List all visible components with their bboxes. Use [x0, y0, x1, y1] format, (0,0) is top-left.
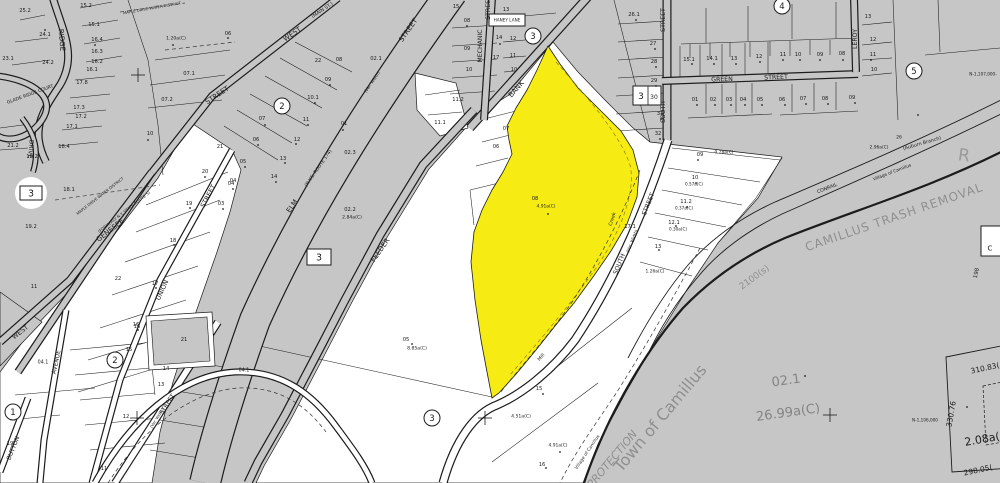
- street-label-leroy: LEROY: [852, 29, 859, 49]
- parcel-label: 07: [800, 96, 807, 102]
- parcel-label: 2.84a(C): [342, 215, 362, 221]
- parcel-label: 01: [692, 97, 699, 103]
- parcel-label: 1.20a(C): [166, 36, 186, 42]
- parcel-label: 17.2: [75, 114, 87, 120]
- parcel-point-dot: [264, 124, 266, 126]
- parcel-label: 12.1: [668, 220, 680, 226]
- parcel-map[interactable]: RIDGEGLADE RIDGE COURTDRIVEMAPLE DRIVE W…: [0, 0, 1000, 483]
- parcel-label: 08: [336, 57, 343, 63]
- parcel-label: 07: [503, 126, 510, 132]
- parcel-label: 15.1: [88, 22, 100, 28]
- parcel-point-dot: [917, 114, 919, 116]
- parcel-label: 04: [740, 97, 747, 103]
- parcel-label: 11: [780, 52, 787, 58]
- parcel-label: 23.1: [2, 56, 14, 62]
- parcel-point-dot: [654, 48, 656, 50]
- parcel-label: 28: [651, 59, 658, 65]
- parcel-label: 14: [271, 174, 278, 180]
- parcel-point-dot: [730, 104, 732, 106]
- parcel-label: 15: [126, 347, 133, 353]
- parcel-label: 03: [218, 201, 225, 207]
- parcel-point-dot: [805, 103, 807, 105]
- parcel-label: 19: [186, 201, 193, 207]
- parcel-label: 21: [217, 144, 224, 150]
- parcel-label: 4.91a(C): [549, 443, 568, 449]
- parcel-point-dot: [759, 61, 761, 63]
- parcel-label: 17: [152, 281, 159, 287]
- parcel-point-dot: [232, 188, 234, 190]
- parcel-label: 13: [865, 14, 872, 20]
- highlighted-parcel-area: 4.91a(C): [537, 204, 556, 210]
- parcel-label: 13: [503, 7, 510, 13]
- parcel-label: 17: [493, 55, 500, 61]
- parcel-label: 09: [464, 46, 471, 52]
- circled-section-number: 5: [911, 67, 916, 77]
- parcel-point-dot: [547, 213, 549, 215]
- parcel-label: 11.2: [680, 199, 692, 205]
- parcel-point-dot: [411, 343, 413, 345]
- parcel-label: 13: [731, 56, 738, 62]
- parcel-point-dot: [784, 104, 786, 106]
- circled-section-number: 1: [10, 408, 15, 418]
- parcel-label: 17.1: [66, 124, 78, 130]
- parcel-label: 09: [817, 52, 824, 58]
- parcel-label: 11: [31, 284, 38, 290]
- parcel-label: 12: [123, 414, 130, 420]
- parcel-label: 06: [253, 137, 260, 143]
- parcel-label: 15: [536, 386, 543, 392]
- parcel-point-dot: [173, 244, 175, 246]
- boxed-section-number: 3: [316, 252, 322, 263]
- parcel-point-dot: [870, 59, 872, 61]
- street-label-south-street: STREET: [660, 8, 667, 32]
- parcel-label: 10: [795, 52, 802, 58]
- parcel-label: 07.2: [161, 97, 173, 103]
- parcel-point-dot: [696, 104, 698, 106]
- parcel-label: 12: [294, 137, 301, 143]
- parcel-point-dot: [854, 102, 856, 104]
- parcel-label: 18.4: [58, 144, 70, 150]
- circled-section-number: 4: [779, 2, 784, 12]
- parcel-label: 11.1: [434, 120, 446, 126]
- parcel-point-dot: [329, 84, 331, 86]
- parcel-label: 16.4: [91, 37, 103, 43]
- parcel-label: 26.1: [628, 12, 640, 18]
- parcel-point-dot: [342, 129, 344, 131]
- parcel-label: 01: [341, 121, 348, 127]
- parcel-label: 17.1: [624, 224, 636, 230]
- parcel-point-dot: [659, 138, 661, 140]
- parcel-label: 17.8: [76, 80, 88, 86]
- parcel-point-dot: [655, 66, 657, 68]
- parcel-label: 02.2: [344, 207, 356, 213]
- parcel-point-dot: [799, 59, 801, 61]
- parcel-point-dot: [635, 19, 637, 21]
- parcel-label: 0.37a(C): [675, 205, 693, 210]
- parcel-label: 10.1: [307, 95, 319, 101]
- parcel-label: 09: [325, 77, 332, 83]
- parcel-point-dot: [713, 63, 715, 65]
- parcel-point-dot: [655, 85, 657, 87]
- parcel-label: 27: [650, 41, 657, 47]
- parcel-label: 06: [779, 97, 786, 103]
- parcel-label: 02: [710, 97, 717, 103]
- parcel-point-dot: [827, 103, 829, 105]
- parcel-label: 16.3: [91, 49, 103, 55]
- grid-coordinate-label: N-1,107,000-: [969, 71, 997, 76]
- parcel-point-dot: [542, 393, 544, 395]
- parcel-label: 08: [822, 96, 829, 102]
- parcel-point-dot: [804, 375, 806, 377]
- parcel-label: 04.1: [38, 360, 49, 366]
- parcel-label: 4.51a(C): [511, 414, 531, 420]
- circled-section-number: 3: [429, 414, 434, 424]
- parcel-point-dot: [275, 181, 277, 183]
- parcel-point-dot: [172, 44, 174, 46]
- parcel-label: 16: [134, 324, 141, 330]
- parcel-point-dot: [735, 63, 737, 65]
- highlighted-parcel-number: 08: [532, 196, 539, 202]
- parcel-label: 0.30a(C): [669, 226, 687, 231]
- parcel-label: 10: [871, 67, 878, 73]
- parcel-label: 04: [228, 181, 235, 187]
- parcel-point-dot: [94, 44, 96, 46]
- parcel-point-dot: [545, 467, 547, 469]
- parcel-point-dot: [761, 104, 763, 106]
- street-label-green: GREEN: [711, 76, 733, 84]
- parcel-point-dot: [466, 25, 468, 27]
- parcel-point-dot: [691, 63, 693, 65]
- grid-coordinate-label: N-1,106,000: [912, 417, 938, 422]
- parcel-point-dot: [559, 451, 561, 453]
- parcel-label: 14.1: [706, 56, 718, 62]
- parcel-label: 19.2: [26, 154, 38, 160]
- parcel-point-dot: [204, 176, 206, 178]
- parcel-label: 21.2: [7, 143, 19, 149]
- parcel-label: 11: [101, 466, 108, 472]
- parcel-label: 24.1: [39, 32, 51, 38]
- boxed-section-number: 3: [638, 92, 644, 102]
- partial-letter: C: [988, 244, 993, 252]
- parcel-label: 29: [651, 78, 658, 84]
- parcel-label: 12: [510, 36, 517, 42]
- parcel-label: 10: [466, 67, 473, 73]
- parcel-label: 09: [697, 152, 704, 158]
- parcel-label: 14: [163, 366, 170, 372]
- parcel-point-dot: [295, 143, 297, 145]
- parcel-label: 24.2: [42, 60, 54, 66]
- parcel-point-dot: [244, 166, 246, 168]
- parcel-point-dot: [222, 208, 224, 210]
- parcel-label: 02.1: [370, 56, 382, 62]
- parcel-label: 19.2: [25, 224, 37, 230]
- parcel-number: 30: [650, 94, 658, 101]
- parcel-label: 18: [170, 238, 177, 244]
- parcel-label: 22: [315, 58, 322, 64]
- parcel-label: 04.1: [239, 368, 250, 374]
- parcel-map-canvas[interactable]: RIDGEGLADE RIDGE COURTDRIVEMAPLE DRIVE W…: [0, 0, 1000, 483]
- parcel-label: 10: [511, 67, 518, 73]
- parcel-label: 0.57a(C): [685, 181, 703, 186]
- parcel-label: 15.1: [683, 57, 695, 63]
- parcel-label: 31: [657, 111, 664, 117]
- parcel-label: 09: [849, 95, 856, 101]
- parcel-label: 20: [202, 169, 209, 175]
- parcel-label: 12: [756, 54, 763, 60]
- parcel-label: 21: [181, 337, 188, 343]
- parcel-label: 26: [896, 135, 902, 141]
- parcel-label: 13: [158, 382, 165, 388]
- parcel-point-dot: [284, 162, 286, 164]
- parcel-label: 05: [240, 159, 247, 165]
- parcel-point-dot: [155, 287, 157, 289]
- parcel-label: 11.2: [452, 97, 464, 103]
- parcel-point-dot: [257, 144, 259, 146]
- parcel-label: 1.26a(C): [646, 269, 665, 275]
- circled-section-number: 2: [279, 102, 284, 112]
- parcel-label: 32: [655, 131, 662, 137]
- parcel-label: 15.2: [80, 3, 92, 9]
- parcel-label: 16.2: [91, 59, 103, 65]
- parcel-label: 18.1: [63, 187, 75, 193]
- parcel-label: 08: [839, 51, 846, 57]
- parcel-point-dot: [819, 59, 821, 61]
- parcel-point-dot: [966, 406, 968, 408]
- parcel-label: 25.2: [19, 8, 31, 14]
- parcel-label: 07.1: [183, 71, 195, 77]
- parcel-label: 0.28a(C): [715, 150, 734, 156]
- circled-section-number: 3: [530, 32, 535, 42]
- boxed-section-number: 3: [28, 188, 34, 199]
- parcel-point-dot: [744, 104, 746, 106]
- parcel-label: 06: [225, 31, 232, 37]
- parcel-label: 19: [7, 441, 14, 447]
- parcel-label: 2.96a(C): [870, 145, 889, 151]
- parcel-label: 15: [453, 4, 460, 10]
- parcel-point-dot: [189, 207, 191, 209]
- parcel-label: 22: [115, 276, 122, 282]
- street-label-mechanic-street: STREET: [485, 0, 492, 20]
- parcel-label: 06: [493, 144, 500, 150]
- parcel-point-dot: [714, 104, 716, 106]
- parcel-label: 16.1: [86, 67, 98, 73]
- street-label-green-street: STREET: [764, 74, 788, 82]
- street-label-mechanic: MECHANIC: [477, 29, 484, 62]
- street-label-haney-lane: HANEY LANE: [494, 17, 521, 22]
- parcel-point-dot: [499, 43, 501, 45]
- parcel-label: 05: [757, 97, 764, 103]
- circled-section-number: 2: [112, 356, 117, 366]
- parcel-point-dot: [44, 29, 46, 31]
- parcel-label: 13: [655, 244, 662, 250]
- parcel-label: 10: [692, 175, 699, 181]
- parcel-label: 11: [870, 52, 877, 58]
- parcel-point-dot: [842, 59, 844, 61]
- parcel-label: 14: [496, 35, 503, 41]
- parcel-label: 08: [464, 18, 471, 24]
- parcel-label: 05: [403, 337, 410, 343]
- parcel-label: 02.3: [344, 150, 356, 156]
- parcel-point-dot: [314, 102, 316, 104]
- parcel-label: 07: [259, 116, 266, 122]
- parcel-label: 16: [539, 462, 546, 468]
- parcel-label: 8.85a(C): [407, 346, 427, 352]
- parcel-point-dot: [147, 139, 149, 141]
- parcel-point-dot: [227, 37, 229, 39]
- parcel-label: 10: [147, 131, 154, 137]
- parcel-point-dot: [307, 124, 309, 126]
- parcel-point-dot: [782, 59, 784, 61]
- parcel-point-dot: [697, 159, 699, 161]
- parcel-label: 11: [510, 53, 517, 59]
- parcel-label: 03: [726, 97, 733, 103]
- parcel-label: 17.3: [73, 105, 85, 111]
- parcel-label: 12: [870, 37, 877, 43]
- parcel-label: 13: [280, 156, 287, 162]
- parcel-label: 11: [303, 117, 310, 123]
